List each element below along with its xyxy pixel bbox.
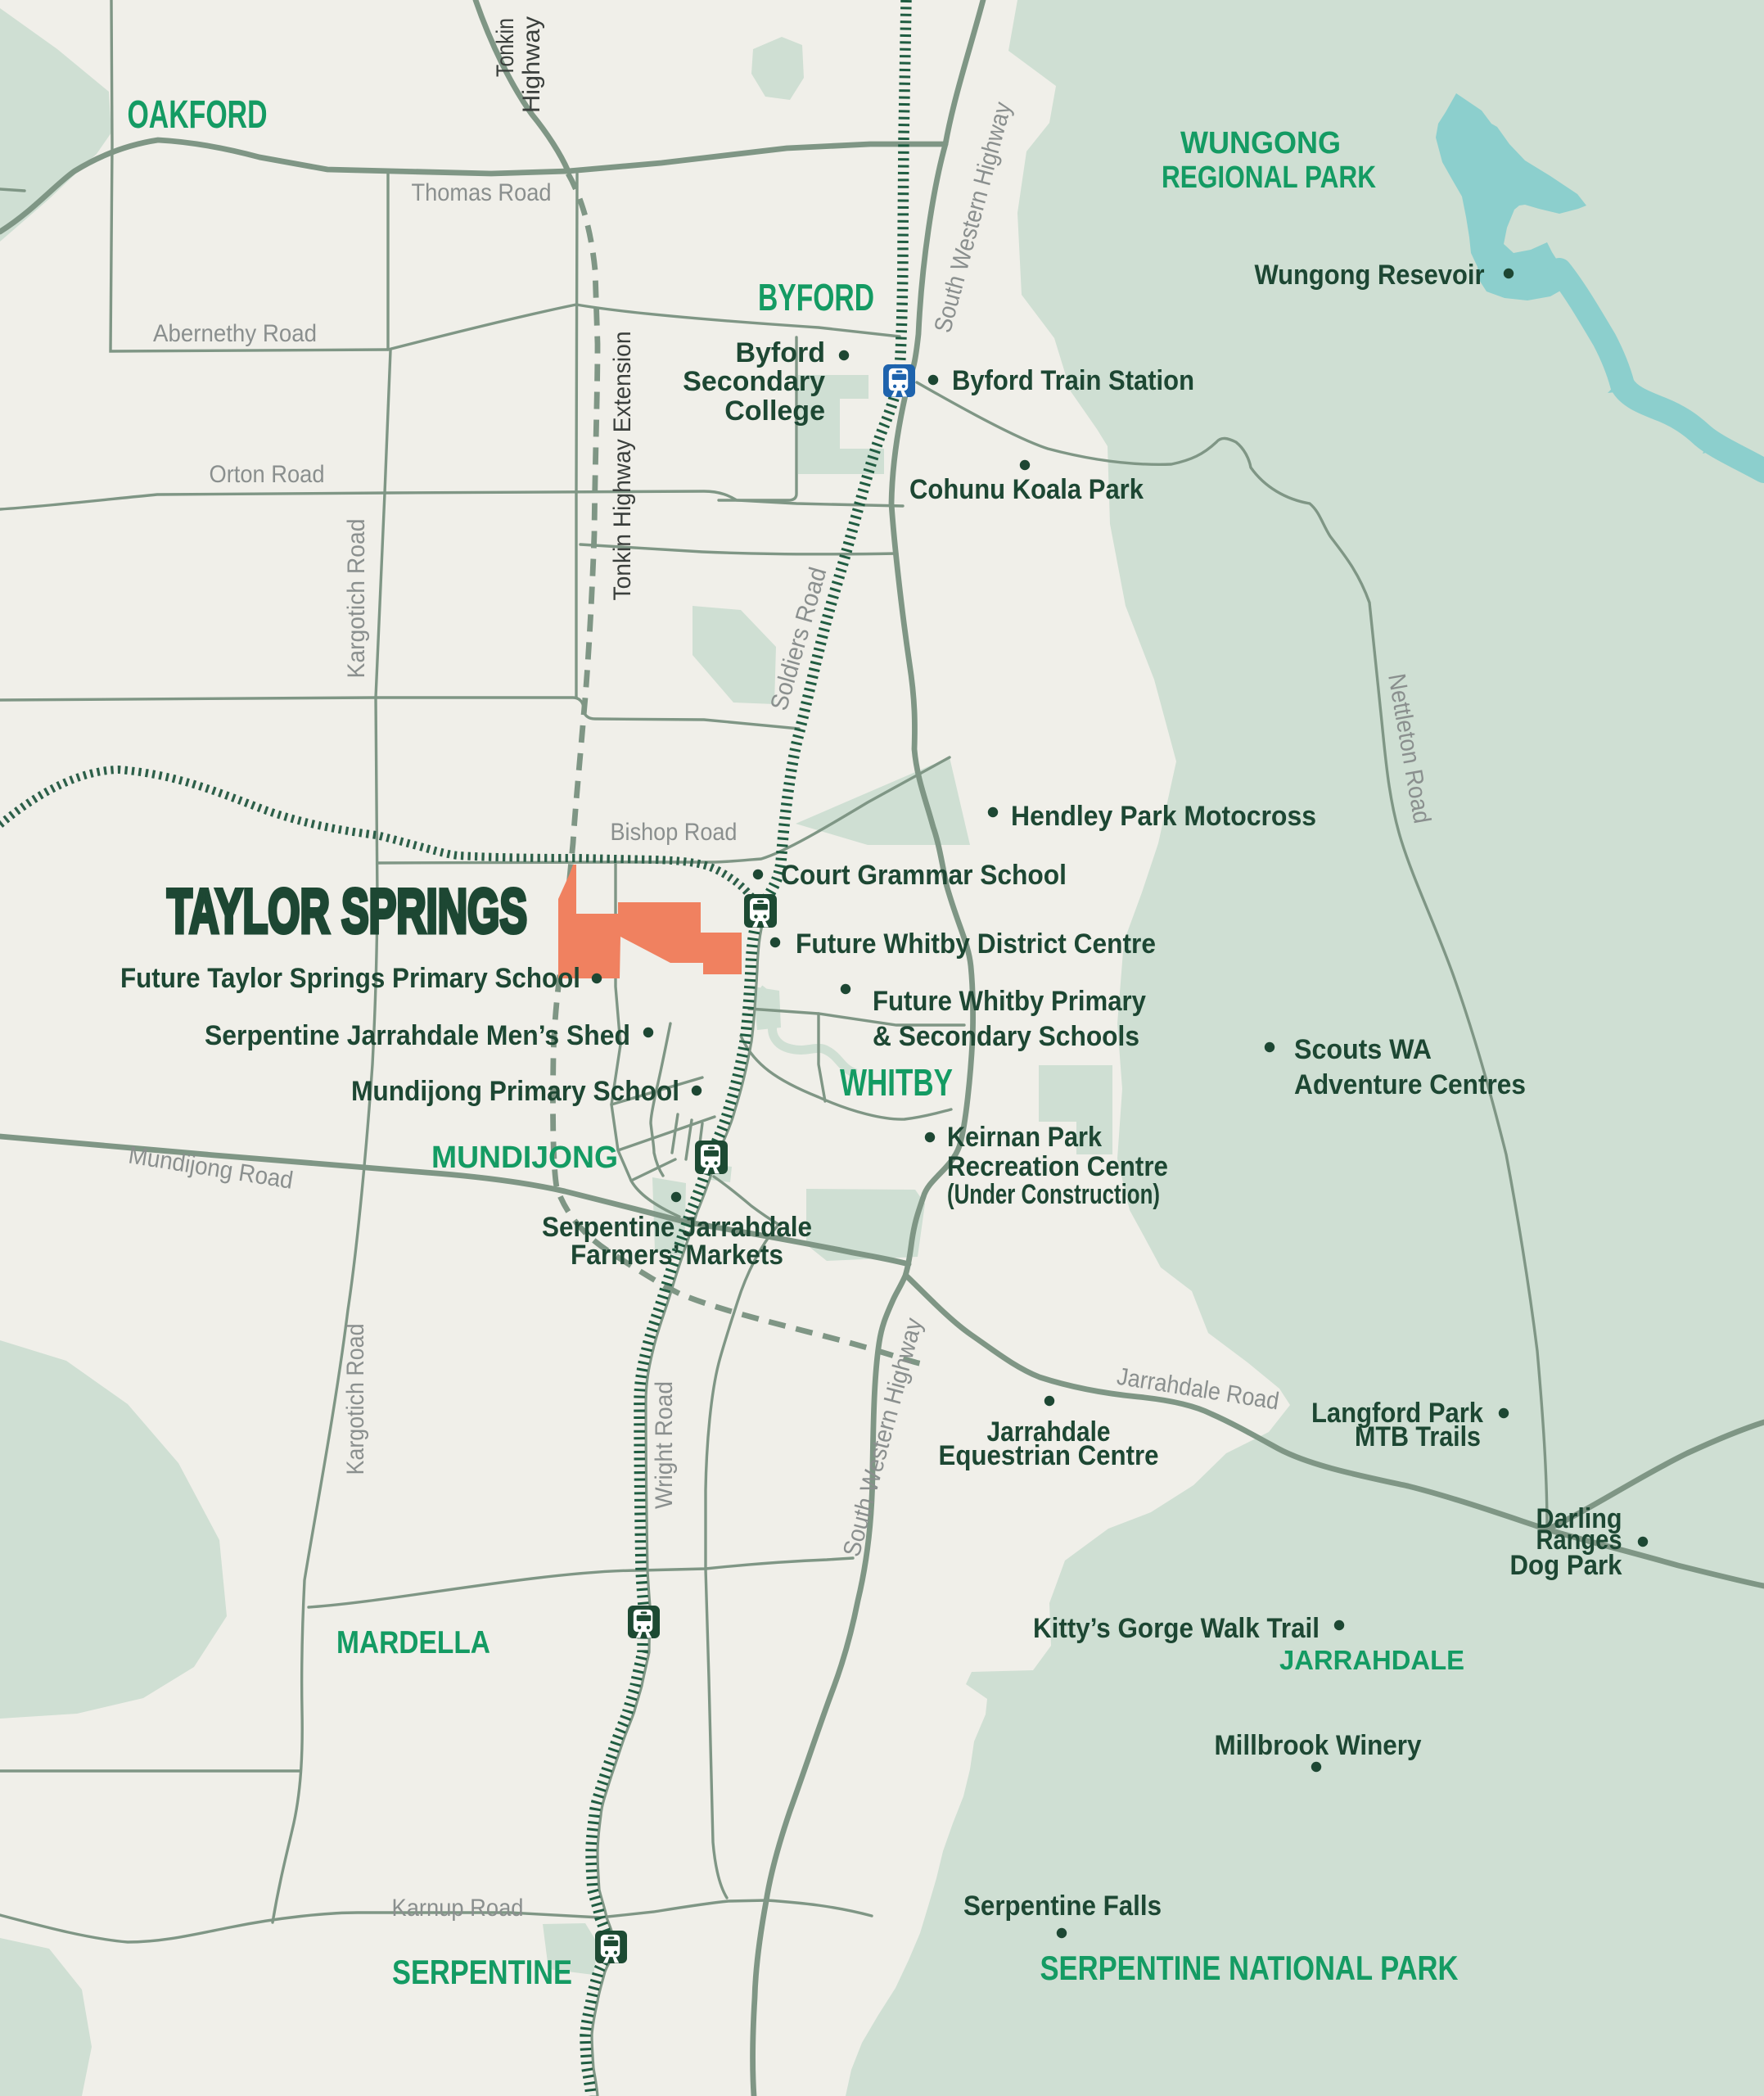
svg-text:Orton Road: Orton Road <box>210 461 325 488</box>
svg-text:Byford: Byford <box>735 337 825 368</box>
svg-text:Kargotich Road: Kargotich Road <box>343 519 370 679</box>
svg-text:Kitty’s Gorge Walk Trail: Kitty’s Gorge Walk Trail <box>1033 1613 1320 1644</box>
svg-text:TAYLOR SPRINGS: TAYLOR SPRINGS <box>167 877 527 946</box>
svg-text:Thomas Road: Thomas Road <box>412 179 552 206</box>
svg-text:(Under Construction): (Under Construction) <box>947 1179 1160 1210</box>
svg-text:Serpentine Jarrahdale: Serpentine Jarrahdale <box>542 1212 812 1243</box>
svg-text:Dog Park: Dog Park <box>1510 1550 1622 1581</box>
svg-text:Wungong Resevoir: Wungong Resevoir <box>1255 260 1485 291</box>
svg-text:MTB Trails: MTB Trails <box>1355 1421 1481 1452</box>
svg-text:Scouts WA: Scouts WA <box>1294 1034 1432 1065</box>
svg-text:Farmers’ Markets: Farmers’ Markets <box>571 1240 783 1271</box>
svg-text:OAKFORD: OAKFORD <box>128 93 268 137</box>
svg-text:WHITBY: WHITBY <box>840 1061 953 1104</box>
svg-text:MUNDIJONG: MUNDIJONG <box>431 1141 618 1175</box>
svg-text:Future Taylor Springs Primary: Future Taylor Springs Primary School <box>120 963 580 994</box>
svg-text:Recreation Centre: Recreation Centre <box>947 1151 1168 1182</box>
svg-text:SERPENTINE NATIONAL PARK: SERPENTINE NATIONAL PARK <box>1040 1949 1459 1987</box>
svg-text:Highway: Highway <box>518 16 545 113</box>
svg-text:JARRAHDALE: JARRAHDALE <box>1279 1645 1464 1675</box>
svg-text:Tonkin: Tonkin <box>492 18 519 77</box>
svg-text:Wright Road: Wright Road <box>651 1381 678 1509</box>
svg-text:Secondary: Secondary <box>683 366 825 397</box>
svg-text:Future Whitby Primary: Future Whitby Primary <box>873 986 1146 1017</box>
svg-text:Serpentine Jarrahdale Men’s Sh: Serpentine Jarrahdale Men’s Shed <box>205 1020 630 1051</box>
svg-text:Mundijong Primary School: Mundijong Primary School <box>351 1076 679 1107</box>
svg-text:Keirnan Park: Keirnan Park <box>947 1122 1102 1153</box>
svg-text:MARDELLA: MARDELLA <box>336 1625 490 1660</box>
svg-text:Kargotich Road: Kargotich Road <box>342 1324 369 1475</box>
svg-text:Future Whitby District Centre: Future Whitby District Centre <box>796 928 1156 960</box>
svg-text:Adventure Centres: Adventure Centres <box>1294 1069 1526 1100</box>
svg-text:Cohunu Koala Park: Cohunu Koala Park <box>909 474 1144 505</box>
svg-text:Hendley Park Motocross: Hendley Park Motocross <box>1011 801 1316 832</box>
svg-text:Millbrook Winery: Millbrook Winery <box>1215 1730 1422 1761</box>
svg-text:Tonkin Highway Extension: Tonkin Highway Extension <box>609 332 636 601</box>
svg-text:College: College <box>724 395 825 427</box>
svg-text:Court Grammar School: Court Grammar School <box>781 860 1067 891</box>
svg-text:Karnup Road: Karnup Road <box>392 1895 524 1922</box>
svg-text:BYFORD: BYFORD <box>758 276 874 318</box>
svg-text:Byford Train Station: Byford Train Station <box>952 365 1194 396</box>
svg-text:Bishop Road: Bishop Road <box>611 819 738 846</box>
svg-text:SERPENTINE: SERPENTINE <box>392 1953 572 1991</box>
svg-text:WUNGONG: WUNGONG <box>1180 126 1341 160</box>
svg-text:Serpentine Falls: Serpentine Falls <box>963 1890 1162 1922</box>
svg-text:Equestrian Centre: Equestrian Centre <box>939 1440 1159 1471</box>
svg-text:& Secondary Schools: & Secondary Schools <box>873 1021 1139 1052</box>
svg-text:REGIONAL PARK: REGIONAL PARK <box>1162 160 1376 195</box>
svg-text:Abernethy Road: Abernethy Road <box>153 320 317 347</box>
